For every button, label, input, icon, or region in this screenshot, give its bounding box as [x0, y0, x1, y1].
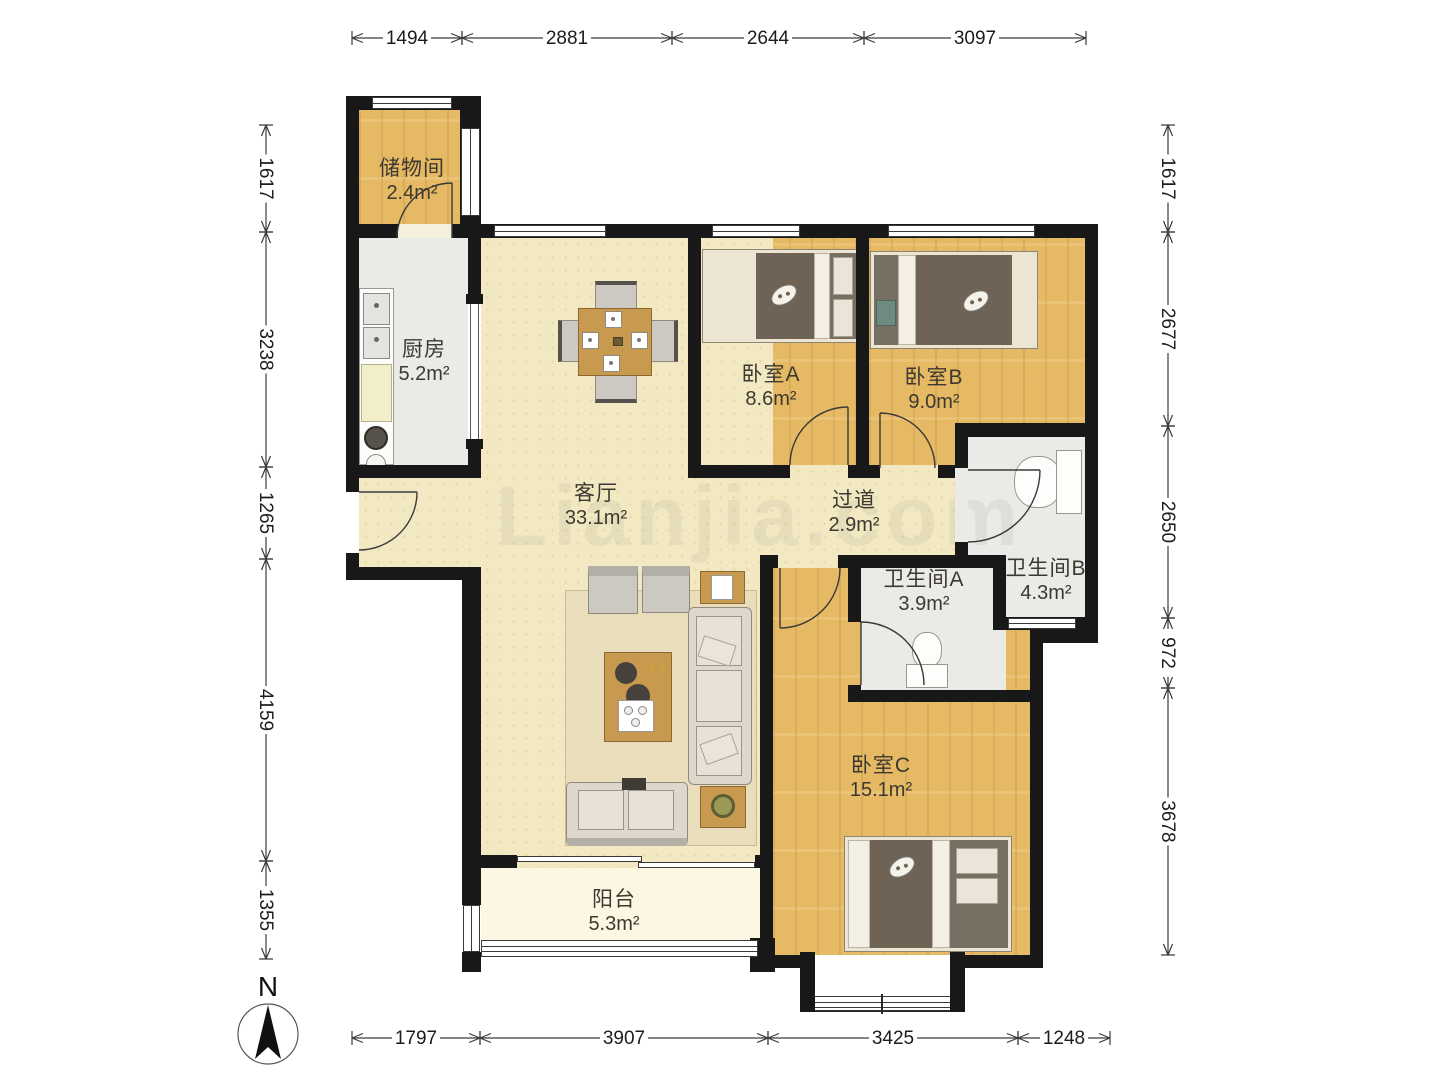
- dimension-label: 1265: [255, 492, 276, 534]
- wall: [848, 690, 1030, 702]
- bed-b-blanket: [1012, 255, 1034, 345]
- room-label-kitchen: 厨房 5.2m²: [398, 338, 449, 386]
- dimension-label: 2650: [1157, 501, 1178, 543]
- faucet: [374, 337, 379, 342]
- window: [494, 225, 606, 237]
- dimension-label: 1617: [255, 157, 276, 199]
- wall: [838, 555, 1006, 568]
- toilet-bowl: [1014, 456, 1062, 508]
- sofa-cushion: [578, 790, 624, 830]
- bed-b-sheet: [898, 255, 916, 345]
- wall: [993, 568, 1006, 630]
- floor-plan-canvas: Lianjia.com: [0, 0, 1440, 1080]
- wall: [1030, 630, 1043, 968]
- plate: [605, 311, 622, 328]
- window: [481, 940, 758, 957]
- toilet-tank: [906, 664, 948, 688]
- compass: N: [238, 971, 298, 1064]
- wall: [346, 567, 466, 580]
- wall: [955, 542, 968, 568]
- dimension-label: 3097: [954, 28, 996, 49]
- sofa-cushion: [628, 790, 674, 830]
- bed-a-pillow: [833, 299, 853, 337]
- door-jamb: [466, 439, 483, 449]
- kitchen-board: [361, 364, 392, 422]
- window: [463, 905, 480, 952]
- room-label-balcony: 阳台 5.3m²: [588, 888, 639, 936]
- plate: [631, 332, 648, 349]
- dimension-label: 4159: [255, 689, 276, 731]
- room-label-hallway: 过道 2.9m²: [828, 489, 879, 537]
- wall: [688, 465, 790, 478]
- armchair: [642, 566, 690, 613]
- wall: [346, 553, 359, 580]
- wall: [848, 685, 861, 702]
- room-label-bedroom-a: 卧室A 8.6m²: [741, 363, 800, 411]
- dimension-label: 2677: [1157, 308, 1178, 350]
- cup: [631, 718, 640, 727]
- wall: [468, 238, 481, 302]
- room-label-bathroom-b: 卫生间B 4.3m²: [1005, 557, 1086, 605]
- decor-bowl: [615, 662, 637, 684]
- plate: [603, 355, 620, 372]
- north-label: N: [258, 971, 278, 1002]
- dimension-label: 3238: [255, 328, 276, 370]
- plate: [582, 332, 599, 349]
- door-jamb: [466, 294, 483, 304]
- wall: [760, 555, 773, 968]
- book: [711, 575, 733, 600]
- toilet-bowl: [912, 632, 942, 668]
- wall: [955, 423, 1098, 437]
- door-opening: [398, 224, 452, 238]
- bed-b-teal-pillow: [876, 300, 896, 326]
- wall: [955, 437, 968, 468]
- dimension-label: 972: [1157, 637, 1178, 669]
- room-label-living: 客厅 33.1m²: [565, 482, 627, 530]
- dining-chair: [595, 281, 637, 309]
- decor-dot: [648, 664, 655, 671]
- kitchen-sink: [363, 327, 390, 359]
- stove-burner: [364, 426, 388, 450]
- door-opening: [955, 468, 968, 542]
- window: [1008, 618, 1076, 629]
- sliding-door-panel: [517, 856, 642, 862]
- kitchen-door-frame: [478, 304, 479, 439]
- dimension-label: 3425: [872, 1028, 914, 1049]
- door-opening: [346, 492, 359, 553]
- sliding-door-panel: [638, 862, 755, 868]
- window: [888, 225, 1035, 237]
- dimension-label: 1797: [395, 1028, 437, 1049]
- window: [461, 128, 480, 216]
- compass-circle: [238, 1004, 298, 1064]
- bed-a-blanket: [706, 253, 756, 339]
- bay-post: [950, 952, 965, 1012]
- bed-a-sheet: [814, 253, 830, 339]
- kitchen-door-frame: [470, 304, 471, 439]
- sofa-cushion: [696, 670, 742, 722]
- laptop: [622, 778, 646, 790]
- bed-c-pillow: [956, 878, 998, 904]
- toilet-tank: [1056, 450, 1082, 514]
- dimension-label: 3678: [1157, 800, 1178, 842]
- decor-dot: [658, 664, 665, 671]
- plant: [711, 794, 735, 818]
- window: [372, 97, 452, 109]
- dimension-label: 2644: [747, 28, 790, 49]
- wall: [346, 465, 481, 478]
- cup: [638, 706, 647, 715]
- dimension-label: 1355: [255, 889, 276, 931]
- wall: [462, 567, 481, 905]
- room-label-bedroom-b: 卧室B 9.0m²: [904, 366, 963, 414]
- wall: [856, 238, 869, 478]
- wall: [346, 96, 359, 492]
- wall: [1085, 224, 1098, 643]
- bed-c-sheet: [932, 840, 950, 948]
- room-label-bathroom-a: 卫生间A 3.9m²: [883, 568, 964, 616]
- dining-chair: [650, 320, 678, 362]
- bay-post: [800, 952, 815, 1012]
- bed-c-pillow: [956, 848, 998, 874]
- dimension-label: 1617: [1157, 157, 1178, 199]
- wall: [688, 238, 701, 478]
- window: [712, 225, 800, 237]
- bed-c-sheet: [848, 840, 870, 948]
- dining-chair: [595, 375, 637, 403]
- tray: [618, 700, 654, 732]
- dimension-label: 1248: [1043, 1028, 1085, 1049]
- dimension-label: 2881: [546, 28, 588, 49]
- faucet: [374, 303, 379, 308]
- armchair: [588, 566, 638, 614]
- kitchen-sink: [363, 293, 390, 325]
- table-decor: [613, 337, 623, 346]
- dimension-label: 1494: [386, 28, 429, 49]
- bed-a-pillow: [833, 257, 853, 295]
- wall: [462, 952, 481, 972]
- dimension-label: 3907: [603, 1028, 645, 1049]
- room-label-storage: 储物间 2.4m²: [379, 157, 445, 205]
- room-label-bedroom-c: 卧室C 15.1m²: [850, 754, 912, 802]
- wall: [848, 555, 861, 622]
- north-needle-icon: [255, 1005, 281, 1059]
- cup: [624, 706, 633, 715]
- bay-mullion: [881, 994, 883, 1014]
